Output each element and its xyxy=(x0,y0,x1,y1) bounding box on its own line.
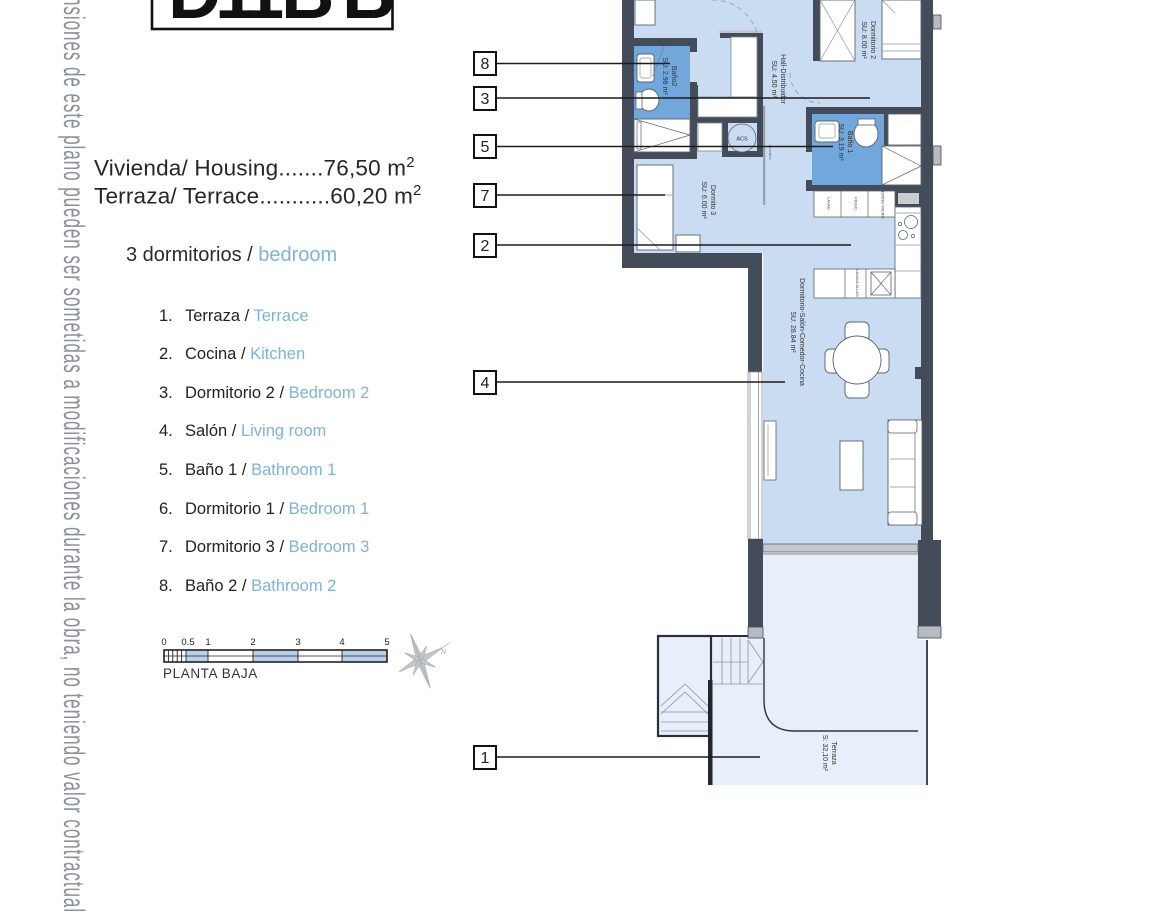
svg-text:1: 1 xyxy=(481,750,490,767)
svg-text:4: 4 xyxy=(481,375,490,392)
svg-text:S: 32,10 m²: S: 32,10 m² xyxy=(821,735,828,772)
svg-text:PLANTA BAJA: PLANTA BAJA xyxy=(163,666,258,681)
svg-text:LAVAVAJILLAS: LAVAVAJILLAS xyxy=(855,269,860,297)
svg-text:2: 2 xyxy=(250,637,255,648)
svg-text:Dormitorio-Salón-Comedor-Cocin: Dormitorio-Salón-Comedor-Cocina xyxy=(798,278,805,386)
svg-text:SU: 6.00 m²: SU: 6.00 m² xyxy=(700,181,707,219)
svg-text:1: 1 xyxy=(243,0,284,34)
svg-text:3: 3 xyxy=(295,637,300,648)
svg-text:4: 4 xyxy=(339,637,344,648)
svg-text:Baño 1: Baño 1 xyxy=(846,131,853,153)
svg-text:3: 3 xyxy=(481,91,490,108)
svg-text:HORNO MICRO: HORNO MICRO xyxy=(881,189,886,218)
svg-text:B: B xyxy=(281,0,334,34)
svg-text:SU: 4.50 m²: SU: 4.50 m² xyxy=(770,60,777,98)
svg-text:5: 5 xyxy=(481,139,490,156)
svg-text:Terraza: Terraza xyxy=(830,741,837,764)
svg-text:7: 7 xyxy=(481,188,490,205)
svg-text:8: 8 xyxy=(481,56,490,73)
svg-text:Dormito 3: Dormito 3 xyxy=(709,185,716,215)
svg-text:SU: 3.19 m²: SU: 3.19 m² xyxy=(837,123,844,161)
svg-text:D: D xyxy=(168,0,221,34)
svg-text:Baño2: Baño2 xyxy=(670,66,677,86)
svg-text:B: B xyxy=(342,0,395,34)
svg-text:N: N xyxy=(441,649,447,656)
svg-text:FRIGO.: FRIGO. xyxy=(854,197,859,211)
svg-text:0.5: 0.5 xyxy=(181,637,194,648)
svg-text:LAVAD.: LAVAD. xyxy=(827,197,832,211)
svg-text:0: 0 xyxy=(161,637,166,648)
svg-text:Dormitorio 2: Dormitorio 2 xyxy=(869,21,876,59)
svg-text:SU: 8.00 m²: SU: 8.00 m² xyxy=(860,21,867,59)
svg-text:SU: 28.84 m²: SU: 28.84 m² xyxy=(789,311,796,353)
svg-text:Hall-Distribuidor: Hall-Distribuidor xyxy=(779,54,786,104)
svg-text:1: 1 xyxy=(205,637,210,648)
svg-text:2: 2 xyxy=(481,238,490,255)
svg-text:5: 5 xyxy=(384,637,389,648)
svg-text:ACS: ACS xyxy=(736,137,748,143)
